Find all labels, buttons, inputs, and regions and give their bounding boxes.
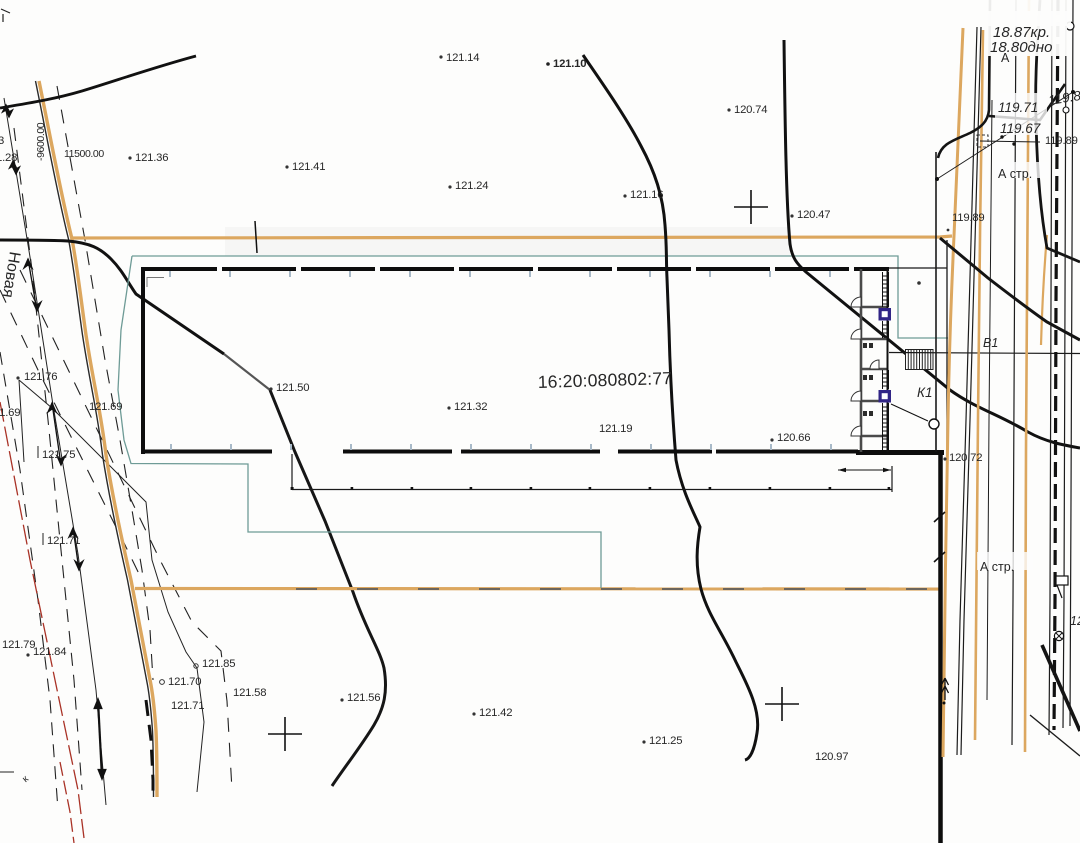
svg-text:121.69: 121.69	[0, 407, 20, 419]
svg-text:120.66: 120.66	[777, 432, 810, 444]
svg-text:А стр.: А стр.	[980, 560, 1014, 574]
svg-text:К1: К1	[917, 385, 932, 400]
svg-text:11500.00: 11500.00	[64, 148, 104, 160]
svg-text:119.71: 119.71	[998, 100, 1038, 115]
svg-text:18.80дно: 18.80дно	[990, 39, 1052, 56]
svg-text:121.71: 121.71	[171, 700, 204, 712]
svg-text:120.72: 120.72	[949, 452, 982, 464]
svg-text:121.56: 121.56	[347, 692, 380, 704]
svg-text:В1: В1	[983, 336, 998, 350]
svg-text:121.50: 121.50	[276, 382, 309, 394]
svg-text:1.28: 1.28	[0, 152, 17, 164]
svg-text:121.84: 121.84	[33, 646, 66, 658]
svg-text:12: 12	[1070, 614, 1080, 628]
svg-text:119.89: 119.89	[1045, 135, 1078, 147]
svg-text:120.97: 120.97	[815, 751, 848, 763]
svg-text:121.76: 121.76	[24, 371, 57, 383]
svg-text:121.42: 121.42	[479, 707, 512, 719]
svg-text:16:20:080802:77: 16:20:080802:77	[538, 368, 673, 392]
svg-text:121.70: 121.70	[168, 676, 201, 688]
svg-text:121.25: 121.25	[649, 735, 682, 747]
svg-text:121.69: 121.69	[89, 401, 122, 413]
svg-text:121.32: 121.32	[454, 401, 487, 413]
svg-text:121.79: 121.79	[2, 639, 35, 651]
svg-text:А: А	[1001, 51, 1010, 65]
svg-text:121.71: 121.71	[47, 535, 80, 547]
svg-text:121.41: 121.41	[292, 161, 325, 173]
svg-text:121.75: 121.75	[42, 449, 75, 461]
svg-text:121.36: 121.36	[135, 152, 168, 164]
svg-text:121.85: 121.85	[202, 658, 235, 670]
svg-text:121.19: 121.19	[599, 423, 632, 435]
svg-text:3: 3	[0, 135, 4, 147]
svg-text:121.16: 121.16	[630, 189, 663, 201]
svg-text:120.47: 120.47	[797, 209, 830, 221]
svg-text:121.24: 121.24	[455, 180, 488, 192]
svg-text:121.10: 121.10	[553, 58, 586, 70]
svg-text:120.74: 120.74	[734, 104, 767, 116]
svg-text:121.14: 121.14	[446, 52, 479, 64]
svg-text:-9600.00: -9600.00	[35, 122, 47, 161]
svg-text:А стр.: А стр.	[998, 167, 1032, 181]
svg-text:119.89: 119.89	[952, 212, 985, 224]
svg-text:119.67: 119.67	[1000, 121, 1041, 136]
svg-text:121.58: 121.58	[233, 687, 266, 699]
